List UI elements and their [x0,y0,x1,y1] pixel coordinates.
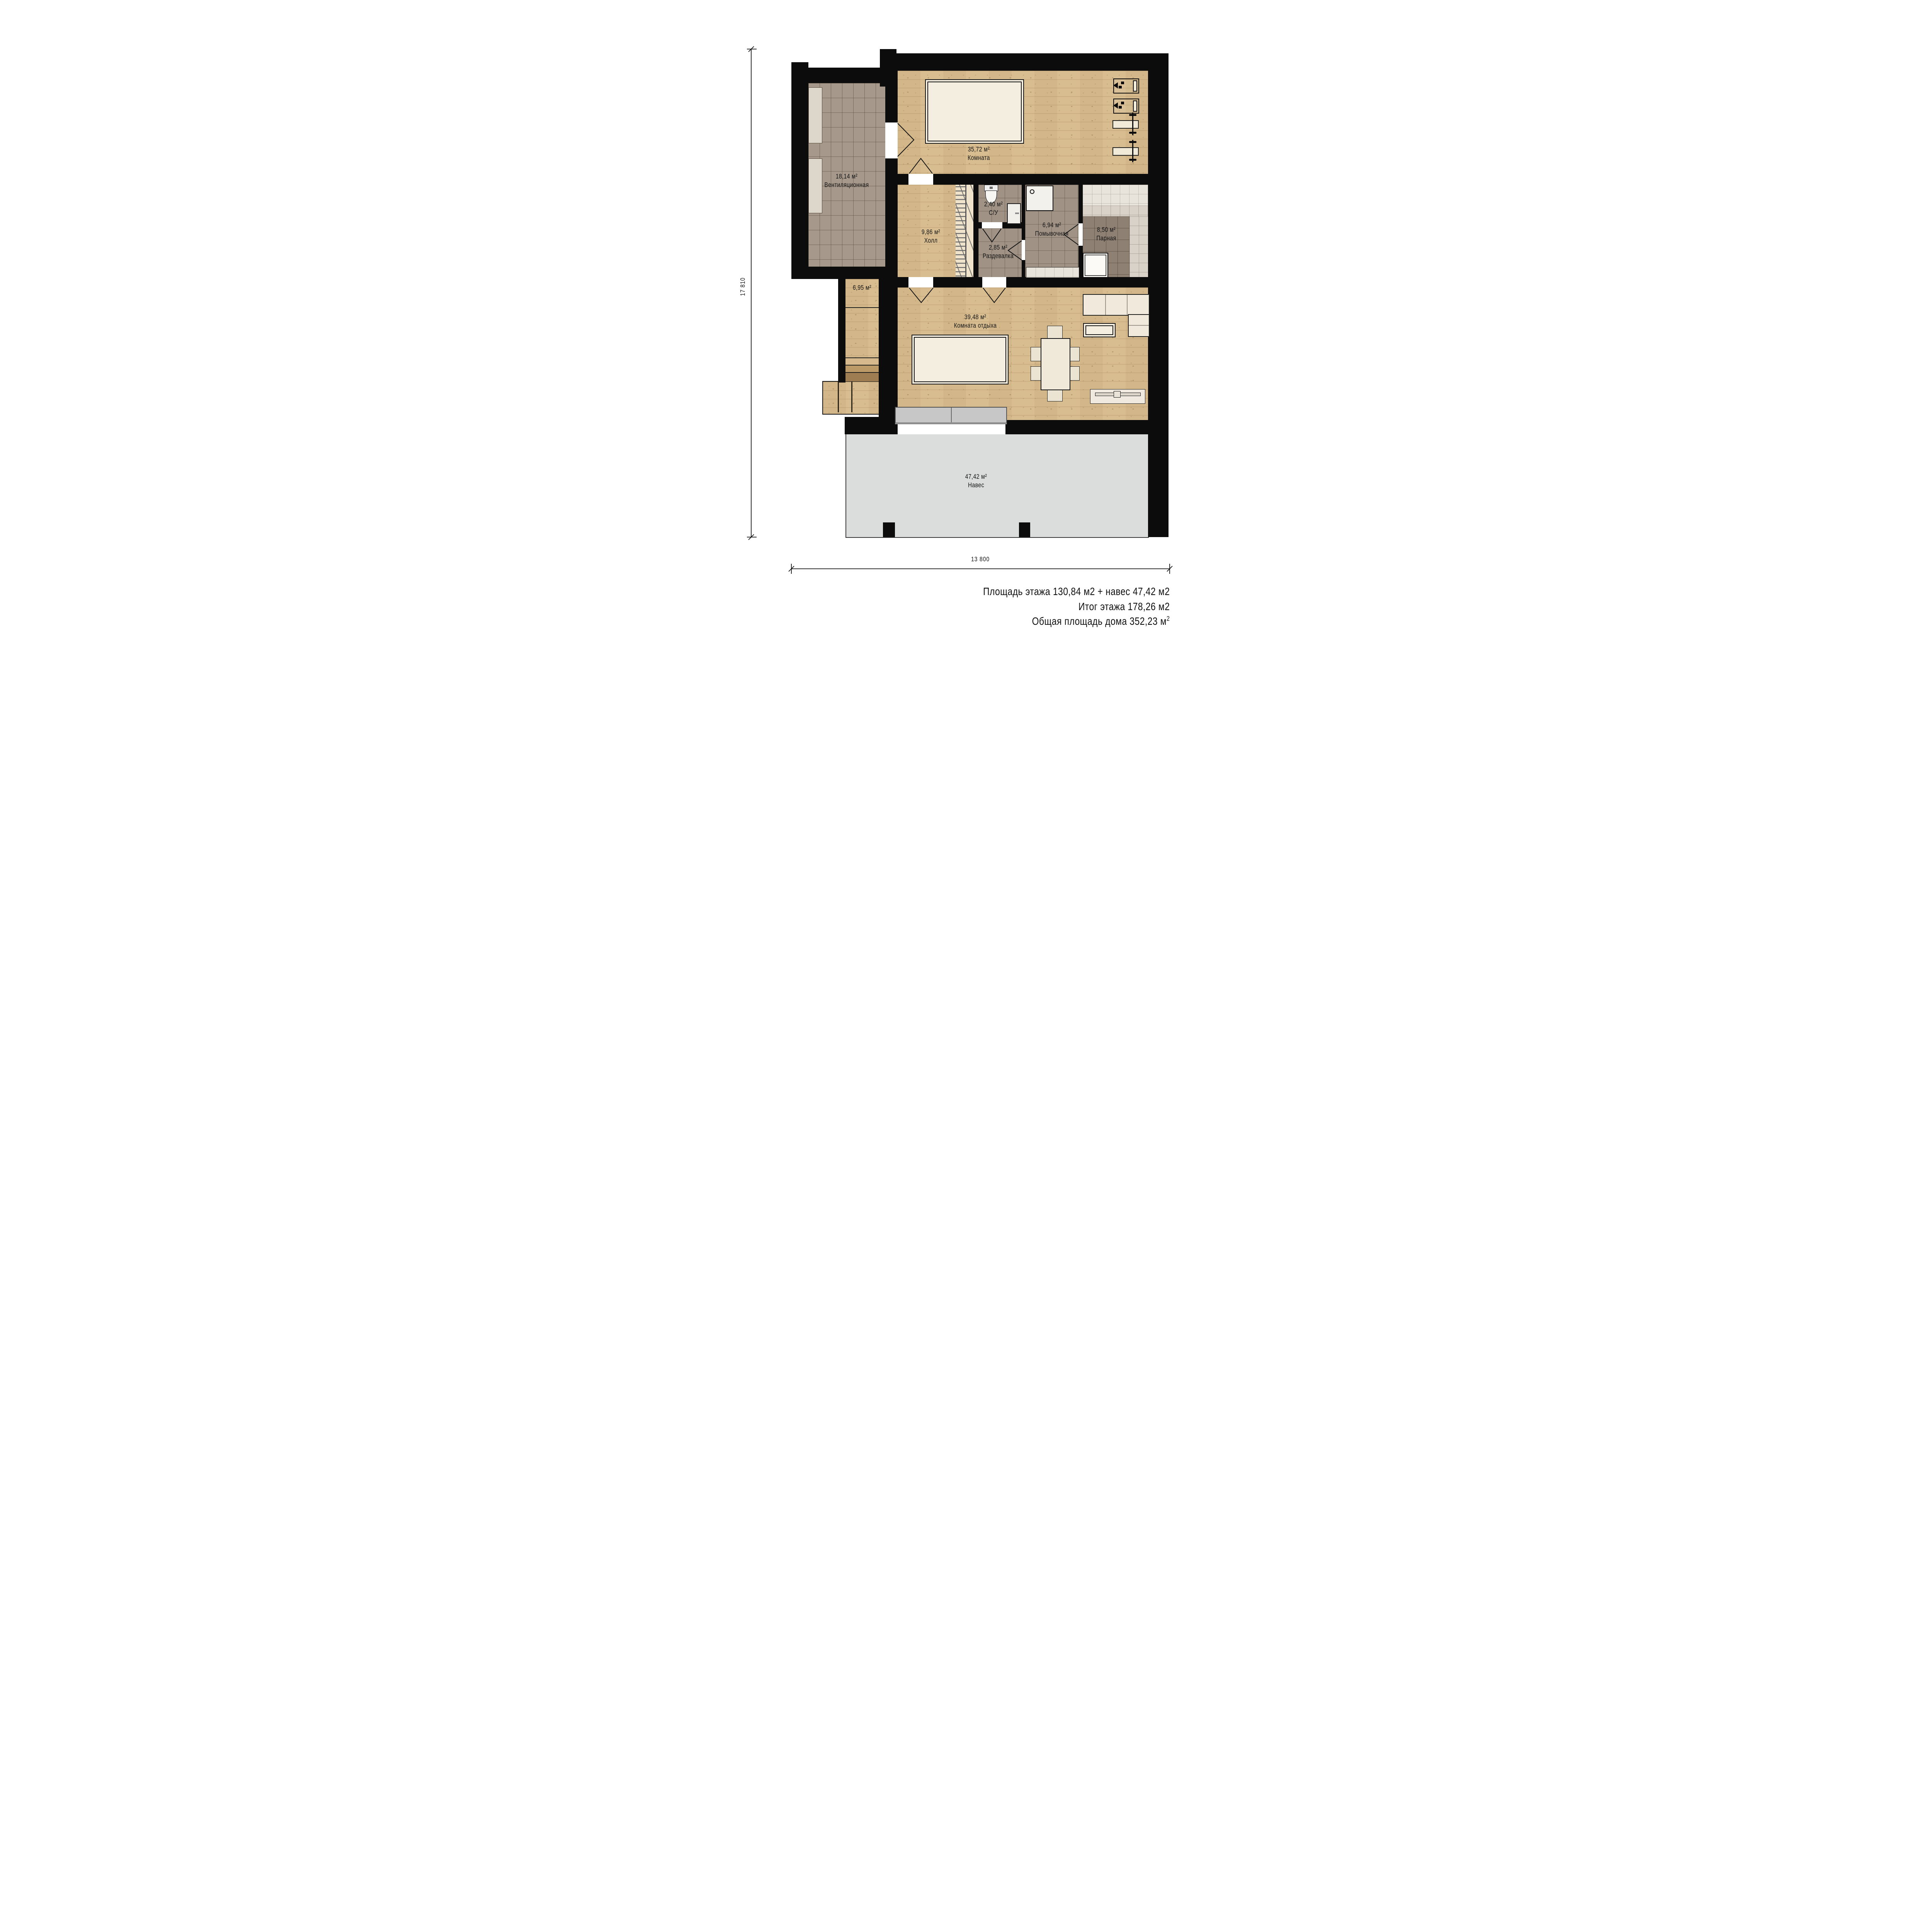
sauna-bench-right [1129,216,1148,277]
dining-table [1041,338,1070,390]
wall-vent-top [791,68,880,83]
room-name: Комната отдыха [954,321,997,330]
exercise-machine-icon-1 [1113,78,1139,94]
dimension-line-horizontal [789,564,1172,574]
room-name: Помывочная [1035,230,1068,238]
room-label-washroom: 6,94 м² Помывочная [1035,221,1068,238]
sauna-stove [1083,253,1108,278]
room-area: 2,85 м² [982,243,1013,252]
door-gap-dressing-washroom [1022,240,1025,260]
summary-line-3-text: Общая площадь дома 352,23 м [1032,615,1167,627]
door-gap-washroom-sauna [1078,223,1083,246]
vent-cabinet-top [808,87,822,143]
summary-line-3: Общая площадь дома 352,23 м2 [983,614,1170,629]
room-area: 39,48 м² [954,313,997,321]
wall-mid-bottom [898,277,1148,287]
room-label-bedroom: 35,72 м² Комната [968,145,990,162]
bed [925,79,1024,144]
sofa-cushion-divider [1129,325,1149,326]
barbell-weight-icon [1129,159,1136,161]
summary-line-3-superscript: 2 [1167,615,1170,622]
dimension-label-bottom: 13 800 [971,556,990,563]
dining-chair-right-2 [1069,366,1080,381]
shower-drain-icon [1030,189,1034,194]
barbell-weight-icon [1129,141,1136,143]
summary-line-1: Площадь этажа 130,84 м2 + навес 47,42 м2 [983,584,1170,599]
room-area: 6,95 м² [852,284,871,292]
machine-seat-icon [1113,82,1118,88]
room-name: С/У [984,209,1002,217]
lounge-table-large [912,335,1009,384]
machine-rail-icon [1133,100,1137,112]
stair-landing-edge [845,307,879,308]
sauna-bench-top-lower [1083,206,1148,216]
machine-rail-icon [1133,80,1137,92]
room-name: Холл [921,236,940,245]
floor-plan-page: .rlabel{position:absolute;text-align:cen… [719,0,1198,678]
room-label-ventilation: 18,14 м² Вентиляционная [824,172,869,189]
room-name: Вентиляционная [824,181,869,189]
sofa-cushion-divider [1127,295,1128,315]
room-area: 35,72 м² [968,145,990,154]
room-area: 2,40 м² [984,200,1002,209]
stair-step-2 [845,365,879,372]
lounge-south-counter [895,407,1007,424]
wall-vent-bedroom-divider [885,71,898,279]
staircase-rail [965,185,966,277]
barbell-weight-icon [1129,114,1136,116]
dining-chair-left-2 [1031,366,1041,381]
weight-bench-2 [1112,147,1139,156]
door-handle-icon [1015,213,1019,214]
door-gap-vent-bedroom [885,122,898,158]
stair-step-1 [845,357,879,365]
room-name: Парная [1096,234,1116,243]
summary-line-2: Итог этажа 178,26 м2 [983,599,1170,614]
machine-part-icon [1121,82,1124,84]
room-name: Раздевалка [982,252,1013,260]
dimension-label-left: 17 810 [739,277,747,296]
door-gap-lounge-hall [908,277,933,287]
room-label-hall: 9,86 м² Холл [921,228,940,245]
machine-part-icon [1119,106,1122,109]
machine-part-icon [1119,86,1122,88]
tv-stand [1090,389,1145,404]
porch-step-line-1 [838,382,839,412]
room-name: Навес [965,481,987,490]
porch-step-line-2 [851,382,852,412]
area-summary: Площадь этажа 130,84 м2 + навес 47,42 м2… [983,584,1170,629]
wall-dressing-washroom [1022,185,1025,277]
dining-chair-right-1 [1069,347,1080,361]
wall-bottom-left [845,417,895,434]
machine-seat-icon [1113,102,1118,109]
wall-vent-bottom [791,267,898,279]
coffee-table [1083,323,1116,337]
room-name: Комната [968,154,990,162]
barbell-weight-icon [1129,132,1136,134]
canopy-column-right [1019,522,1030,537]
vent-cabinet-bottom [808,158,822,213]
hall-staircase [956,185,973,277]
room-area: 47,42 м² [965,473,987,481]
tv-console-box-icon [1114,391,1121,398]
canopy-column-left [883,522,895,537]
room-label-dressing: 2,85 м² Раздевалка [982,243,1013,260]
sofa-top-section [1083,294,1150,316]
weight-bench-1 [1112,120,1139,129]
door-gap-lounge-dressing [982,277,1006,287]
room-area: 6,94 м² [1035,221,1068,230]
room-label-lounge: 39,48 м² Комната отдыха [954,313,997,330]
room-label-stair-room: 6,95 м² [852,284,871,292]
room-area: 18,14 м² [824,172,869,181]
stair-step-3 [845,372,879,381]
wall-top [880,53,1169,71]
sauna-bench-top-upper [1083,185,1148,206]
door-gap-bedroom-hall [908,174,933,185]
dining-chair-left-1 [1031,347,1041,361]
counter-divider [951,408,952,422]
sofa-right-section [1128,314,1150,337]
room-area: 8,50 м² [1096,226,1116,234]
room-label-canopy: 47,42 м² Навес [965,473,987,490]
wall-bottom-right [1005,420,1169,434]
sofa-cushion-divider [1105,295,1106,315]
door-gap-wc-dressing [982,222,1002,228]
wall-bedroom-hall [898,174,1148,185]
washroom-bench [1026,267,1079,278]
room-area: 9,86 м² [921,228,940,236]
wall-right [1148,53,1169,537]
wall-stair-room-left [838,279,845,383]
shower-tray-icon [1026,185,1053,211]
wall-hall-wc [973,185,978,277]
wc-door-leaf [1007,203,1021,224]
toilet-button-icon [990,187,993,189]
machine-part-icon [1121,102,1124,104]
exercise-machine-icon-2 [1113,99,1139,114]
room-label-sauna: 8,50 м² Парная [1096,226,1116,243]
wall-vent-left [791,62,808,279]
dimension-line-vertical [747,46,757,540]
room-label-wc: 2,40 м² С/У [984,200,1002,217]
